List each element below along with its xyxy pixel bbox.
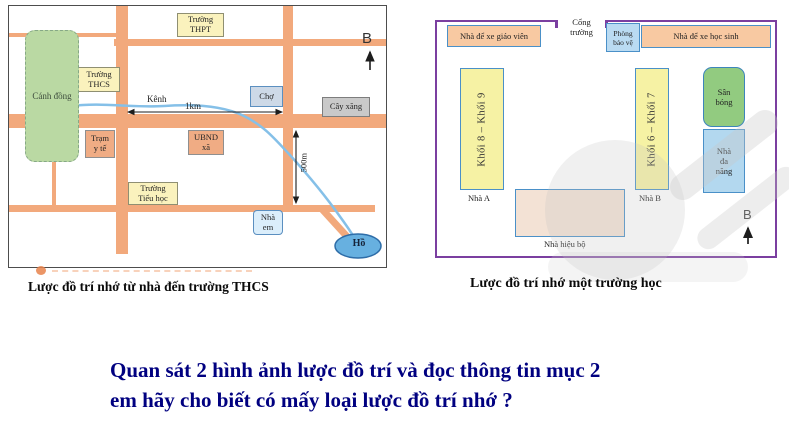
place-label: Trường Tiểu học: [138, 184, 168, 204]
place-label: Trường THCS: [86, 70, 111, 90]
compass-label: B: [362, 31, 372, 46]
place-tram-y-te: Trạm y tế: [85, 130, 115, 158]
place-label: Cánh đồng: [32, 91, 71, 101]
building-nha-hieu-bo: [515, 189, 625, 237]
place-ubnd-xa: UBND xã: [188, 130, 224, 155]
distance-1km-label: 1km: [185, 102, 201, 112]
label-nha-hieu-bo: Nhà hiệu bộ: [544, 240, 586, 249]
right-map-caption: Lược đồ trí nhớ một trường học: [470, 276, 662, 293]
right-map: Cổng trường Nhà để xe giáo viên Phòng bả…: [435, 20, 777, 258]
place-cho: Chợ: [250, 86, 283, 107]
place-truong-thcs: Trường THCS: [78, 67, 120, 92]
place-cay-xang: Cây xăng: [322, 97, 370, 117]
building-nha-da-nang: Nhà đa năng: [703, 129, 745, 193]
left-map: B Trường THPT Trường THCS Cánh đồng Kênh…: [8, 5, 387, 268]
place-label: Cây xăng: [330, 102, 362, 112]
place-canh-dong: Cánh đồng: [25, 30, 79, 162]
distance-500m-label: 500m: [299, 143, 308, 183]
building-label: Khối 8 – Khối 9: [477, 92, 488, 166]
building-label: Nhà để xe học sinh: [673, 31, 738, 41]
question-text: Quan sát 2 hình ảnh lược đồ trí và đọc t…: [110, 355, 710, 416]
legend-fragment-dot: [36, 266, 46, 275]
building-phong-bao-ve: Phòng bảo vệ: [606, 23, 640, 52]
place-label: Trường THPT: [188, 15, 213, 35]
question-line-1: Quan sát 2 hình ảnh lược đồ trí và đọc t…: [110, 355, 710, 385]
building-nha-xe-giao-vien: Nhà để xe giáo viên: [447, 25, 541, 47]
compass-label: B: [743, 208, 752, 221]
building-label: Nhà để xe giáo viên: [460, 31, 528, 41]
place-ho: Hồ: [345, 238, 373, 249]
place-truong-thpt: Trường THPT: [177, 13, 224, 37]
building-san-bong: Sân bóng: [703, 67, 745, 127]
gate-label: Cổng trường: [558, 9, 605, 37]
place-label: Nhà em: [261, 213, 275, 233]
question-line-2: em hãy cho biết có mấy loại lược đồ trí …: [110, 385, 710, 415]
place-truong-tieu-hoc: Trường Tiểu học: [128, 182, 178, 205]
building-khoi-8-9: Khối 8 – Khối 9: [460, 68, 504, 190]
canal-label: Kênh: [147, 95, 167, 105]
building-label: Nhà đa năng: [716, 146, 733, 177]
label-nha-b: Nhà B: [639, 194, 661, 203]
legend-fragment-line: [52, 270, 252, 272]
worksheet-page: B Trường THPT Trường THCS Cánh đồng Kênh…: [0, 0, 789, 421]
building-label: Khối 6 – Khối 7: [647, 92, 658, 166]
place-nha-em: Nhà em: [253, 210, 283, 235]
place-label: UBND xã: [194, 133, 218, 153]
building-khoi-6-7: Khối 6 – Khối 7: [635, 68, 669, 190]
north-arrow-icon: [740, 222, 756, 246]
place-label: Chợ: [259, 92, 273, 102]
left-map-caption: Lược đồ trí nhớ từ nhà đến trường THCS: [28, 279, 269, 295]
building-label: Phòng bảo vệ: [613, 29, 633, 47]
place-label: Trạm y tế: [91, 134, 109, 154]
building-nha-xe-hoc-sinh: Nhà để xe học sinh: [641, 25, 771, 48]
label-nha-a: Nhà A: [468, 194, 490, 203]
building-label: Sân bóng: [716, 87, 733, 107]
